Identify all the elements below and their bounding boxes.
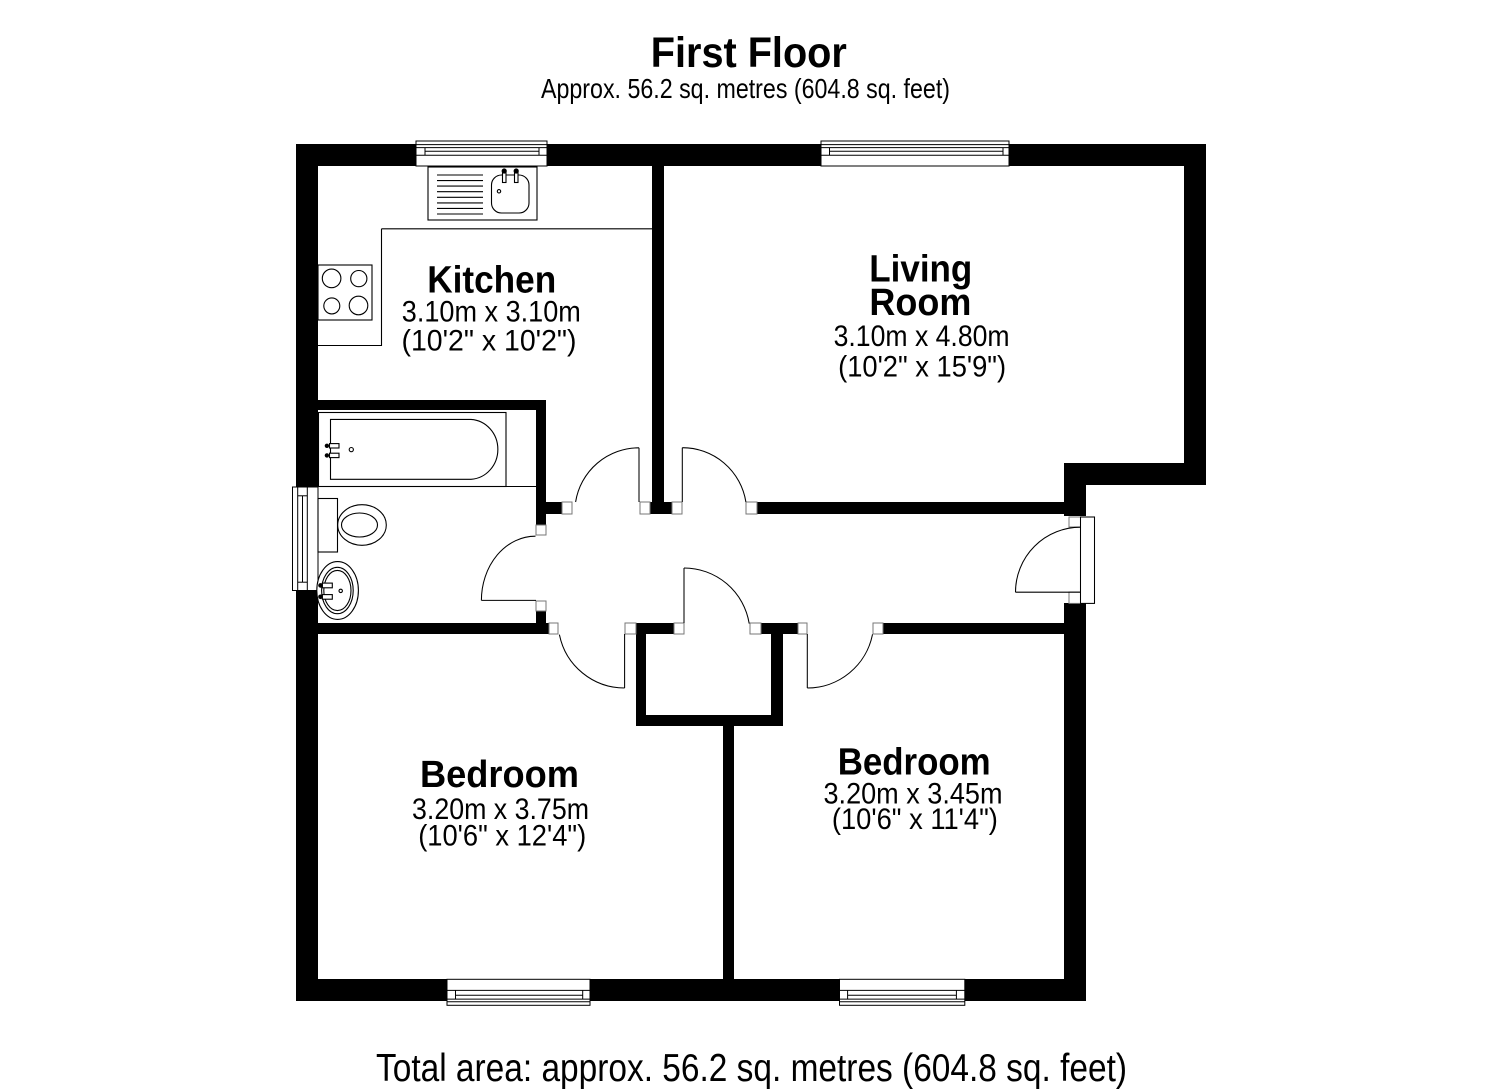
svg-text:Room: Room: [869, 282, 971, 324]
svg-text:Total area: approx. 56.2 sq. m: Total area: approx. 56.2 sq. metres (604…: [376, 1047, 1127, 1090]
svg-text:(10'6" x 11'4"): (10'6" x 11'4"): [832, 803, 998, 836]
svg-text:(10'2" x 15'9"): (10'2" x 15'9"): [838, 351, 1006, 384]
svg-text:First Floor: First Floor: [651, 29, 847, 77]
svg-text:3.10m x 4.80m: 3.10m x 4.80m: [834, 320, 1010, 353]
svg-text:(10'6" x 12'4"): (10'6" x 12'4"): [418, 820, 586, 853]
svg-text:Bedroom: Bedroom: [420, 754, 579, 796]
svg-text:Approx. 56.2 sq. metres (604.8: Approx. 56.2 sq. metres (604.8 sq. feet): [541, 73, 950, 104]
svg-text:(10'2" x 10'2"): (10'2" x 10'2"): [402, 325, 577, 358]
